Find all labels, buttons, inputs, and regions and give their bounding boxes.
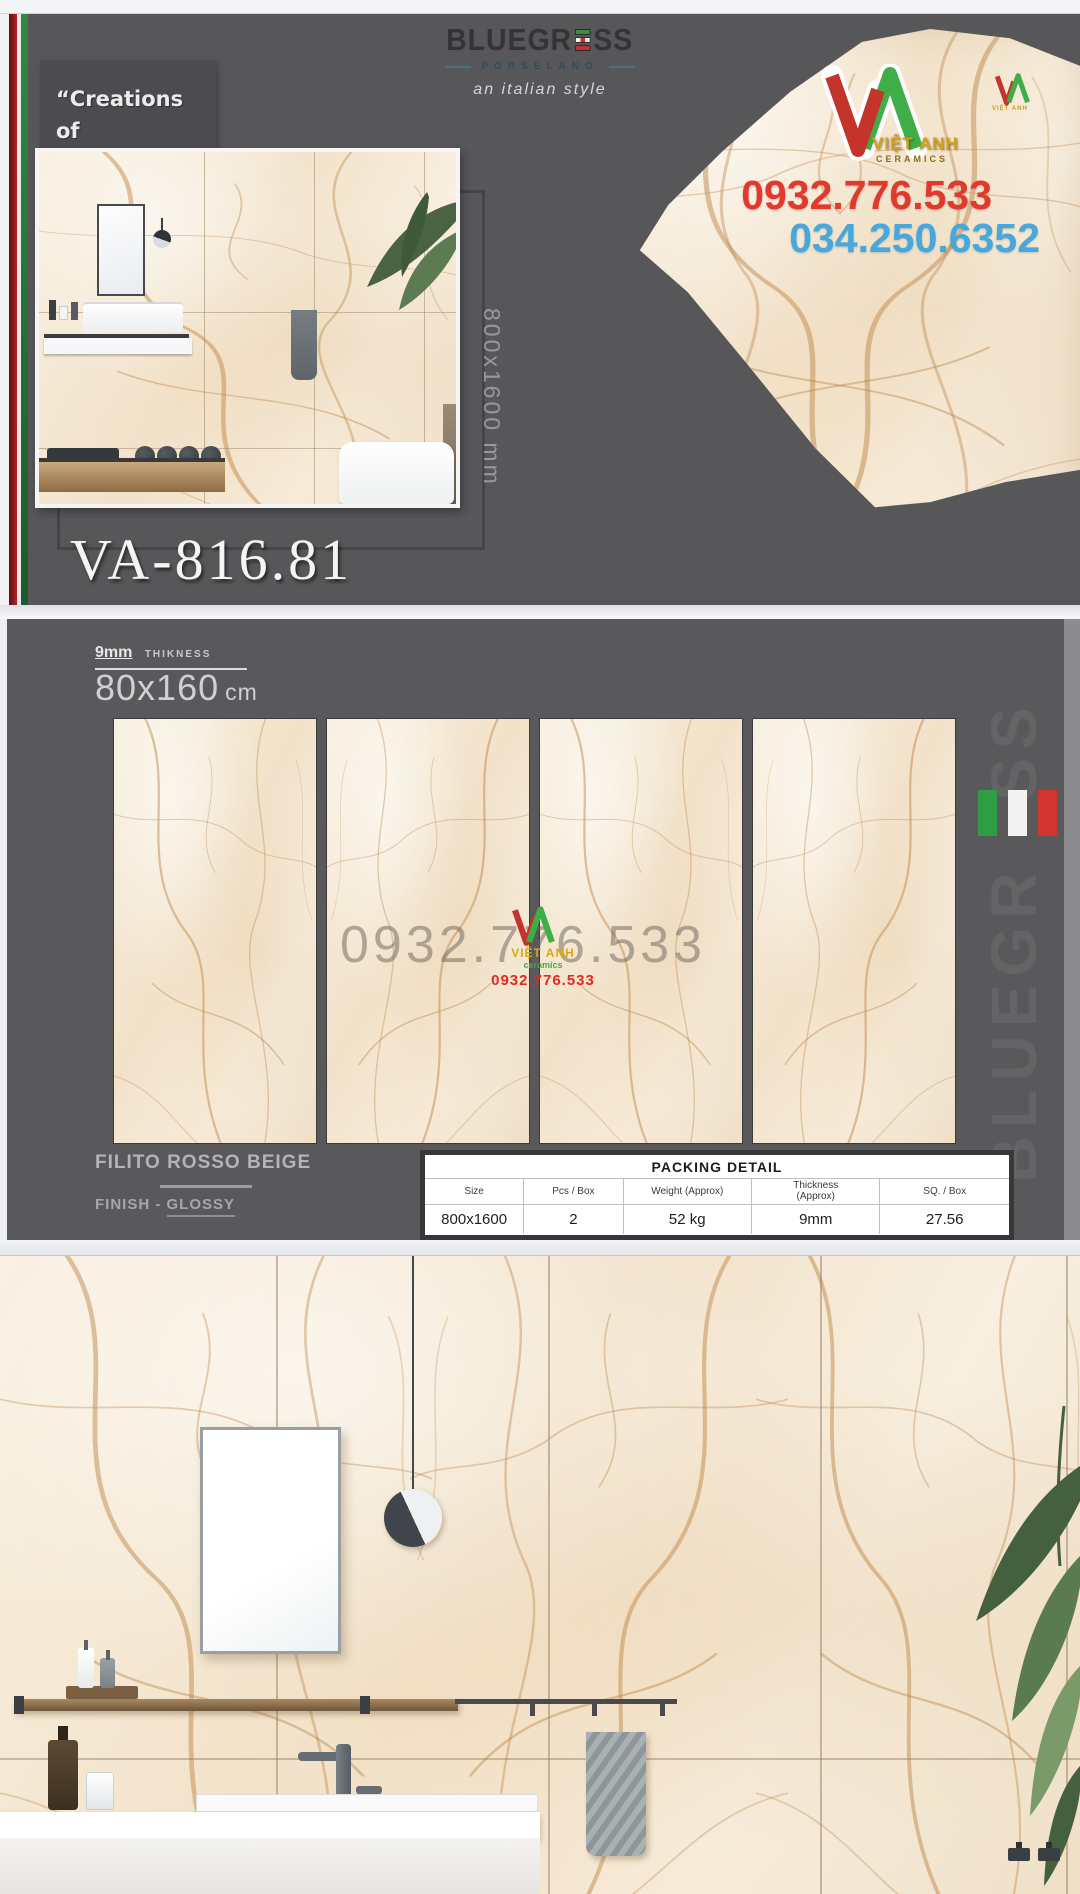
wall-lamp-stem <box>161 218 163 230</box>
plant-icon <box>946 1406 1080 1894</box>
bottle-pump <box>84 1640 88 1650</box>
tile-panel-4 <box>753 719 955 1143</box>
tile-joint <box>0 1758 1080 1760</box>
tile-joint <box>820 1256 822 1894</box>
mirror <box>97 204 145 296</box>
size-label: 80x160cm <box>95 667 258 709</box>
watermark-phone-red: 0932.776.533 <box>470 972 616 989</box>
product-name-underline <box>160 1185 252 1188</box>
vertical-brand-watermark: BLUEGR SS <box>970 681 1058 1201</box>
col-value: 2 <box>524 1205 622 1234</box>
spec-section: 9mm THIKNESS 80x160cm 0932.776.533 VIỆT … <box>0 619 1080 1240</box>
plant-icon <box>307 192 457 322</box>
catalog-page: “Creations of Ravishing Appeal” BLUEGR S… <box>0 0 1080 1894</box>
room-photo <box>35 148 460 508</box>
soap-bottle <box>48 1740 78 1810</box>
bottle <box>78 1648 94 1688</box>
rule-left <box>445 66 471 68</box>
section-divider <box>0 605 1080 619</box>
rail-hook <box>660 1704 665 1716</box>
top-margin-strip <box>0 0 1080 14</box>
product-finish: FINISH - GLOSSY <box>95 1196 235 1213</box>
tagline-line: “Creations of <box>56 84 200 147</box>
marble-veins <box>114 719 316 1143</box>
col-header: Size <box>425 1179 523 1205</box>
right-scan-strip <box>1064 619 1080 1240</box>
packing-col-pcs: Pcs / Box 2 <box>524 1179 623 1234</box>
shelf-bracket <box>14 1696 24 1714</box>
bottle <box>49 300 56 320</box>
faucet-spout <box>298 1752 340 1761</box>
section-divider <box>0 1240 1080 1256</box>
col-header: Thickness (Approx) <box>752 1179 879 1205</box>
bottle <box>71 302 78 320</box>
packing-col-weight: Weight (Approx) 52 kg <box>624 1179 752 1234</box>
product-code: VA-816.81 <box>70 526 352 593</box>
vertical-brand-right: SS <box>977 699 1051 800</box>
brand-logo: BLUEGR SS PORSELANO an italian style <box>400 22 680 99</box>
brand-name-left: BLUEGR <box>447 22 573 58</box>
left-stripe-red <box>9 14 17 605</box>
hero-section: “Creations of Ravishing Appeal” BLUEGR S… <box>0 14 1080 605</box>
pendant-cord <box>412 1256 414 1490</box>
packing-table-title: PACKING DETAIL <box>425 1155 1009 1179</box>
bottle <box>59 306 68 320</box>
tile-joint <box>548 1256 550 1894</box>
vertical-brand-left: BLUEGR <box>977 865 1051 1183</box>
col-value: 27.56 <box>880 1205 1008 1234</box>
folded-towels <box>83 302 183 332</box>
packing-table: PACKING DETAIL Size 800x1600 Pcs / Box 2… <box>420 1150 1014 1240</box>
mirror <box>200 1427 341 1654</box>
marble-veins <box>753 719 955 1143</box>
hanging-towel <box>586 1732 646 1856</box>
finish-prefix: FINISH - <box>95 1196 167 1213</box>
packing-table-grid: Size 800x1600 Pcs / Box 2 Weight (Approx… <box>425 1179 1009 1234</box>
wall-mixer-icon <box>1008 1848 1030 1861</box>
col-value: 800x1600 <box>425 1205 523 1234</box>
italy-flag-icon <box>978 790 1058 836</box>
bathtub <box>339 442 454 504</box>
viet-anh-mini-logo-name: VIỆT ANH <box>992 106 1028 112</box>
watermark-logo-subtitle: ceramics <box>498 960 588 970</box>
wall-shelf <box>14 1699 458 1711</box>
phone-number-primary: 0932.776.533 <box>600 172 992 219</box>
left-margin <box>0 619 7 1240</box>
rail-hook <box>530 1704 535 1716</box>
col-header: Pcs / Box <box>524 1179 622 1205</box>
wall-lamp-icon <box>153 230 171 248</box>
vanity-cabinet <box>0 1838 540 1894</box>
wood-ledge <box>39 458 225 492</box>
col-value: 9mm <box>752 1205 879 1234</box>
shelf-bracket <box>360 1696 370 1714</box>
brand-subtitle-row: PORSELANO <box>400 61 680 72</box>
bottle-pump <box>106 1650 110 1660</box>
left-margin <box>0 14 9 605</box>
viet-anh-logo-name: VIỆT ANH <box>872 134 959 154</box>
viet-anh-mini-logo-icon <box>990 72 1034 108</box>
counter <box>44 338 192 354</box>
packing-col-thickness: Thickness (Approx) 9mm <box>752 1179 880 1234</box>
towel-rail <box>455 1699 677 1704</box>
thickness-value: 9mm <box>95 644 132 661</box>
application-scene <box>0 1256 1080 1894</box>
packing-col-sq: SQ. / Box 27.56 <box>880 1179 1008 1234</box>
tile-panel-1 <box>114 719 316 1143</box>
brand-name: BLUEGR SS <box>447 22 634 58</box>
wall-mixer-icon <box>1038 1848 1060 1861</box>
finish-value: GLOSSY <box>167 1196 236 1217</box>
panel-dimension-label: 800x1600 mm <box>478 308 505 487</box>
brand-subtitle: PORSELANO <box>481 61 598 72</box>
size-unit: cm <box>225 679 258 705</box>
left-stripe-green <box>21 14 28 605</box>
col-value: 52 kg <box>624 1205 751 1234</box>
product-name: FILITO ROSSO BEIGE <box>95 1152 311 1174</box>
col-header: Weight (Approx) <box>624 1179 751 1205</box>
pendant-lamp-icon <box>384 1489 442 1547</box>
size-value: 80x160 <box>95 667 219 708</box>
vanity-counter <box>0 1812 540 1838</box>
watermark-logo-icon <box>503 905 563 949</box>
watermark-logo-name: VIỆT ANH <box>498 946 588 960</box>
thickness-label: THIKNESS <box>145 649 212 660</box>
basin <box>196 1794 538 1812</box>
viet-anh-logo-subtitle: ceramics <box>876 154 948 164</box>
rail-hook <box>592 1704 597 1716</box>
rule-right <box>609 66 635 68</box>
jar <box>86 1772 114 1810</box>
col-header: SQ. / Box <box>880 1179 1008 1205</box>
brand-style-tagline: an italian style <box>400 81 680 99</box>
faucet-handle <box>356 1786 382 1794</box>
bottle <box>100 1658 115 1688</box>
packing-col-size: Size 800x1600 <box>425 1179 524 1234</box>
brand-name-right: SS <box>594 22 634 58</box>
phone-number-secondary: 034.250.6352 <box>648 215 1040 262</box>
italy-flag-letter-icon <box>575 29 591 51</box>
